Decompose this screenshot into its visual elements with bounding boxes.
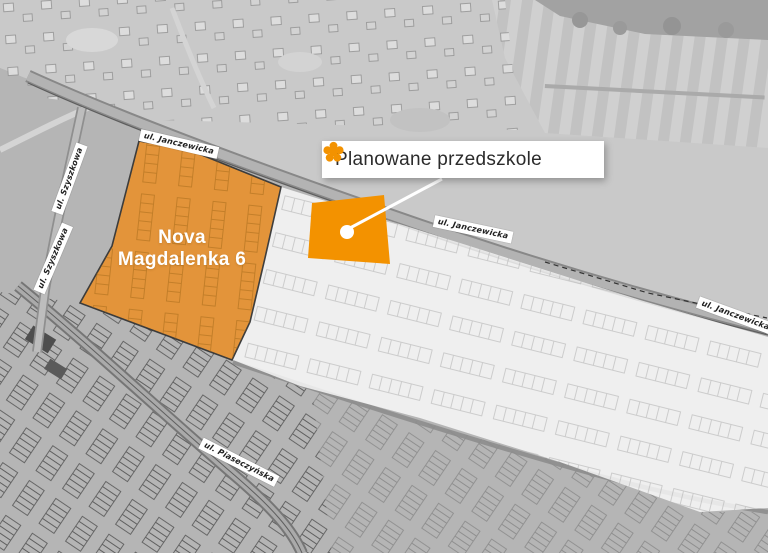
leader-dot xyxy=(340,225,354,239)
map-image xyxy=(0,0,768,553)
legend-label: Planowane przedszkole xyxy=(335,149,542,171)
development-title: Nova Magdalenka 6 xyxy=(92,227,272,271)
site-plan-map: ul. Janczewicka ul. Janczewicka ul. Janc… xyxy=(0,0,768,553)
flower-icon xyxy=(322,141,345,164)
legend-planowane-przedszkole: Planowane przedszkole xyxy=(322,141,604,178)
